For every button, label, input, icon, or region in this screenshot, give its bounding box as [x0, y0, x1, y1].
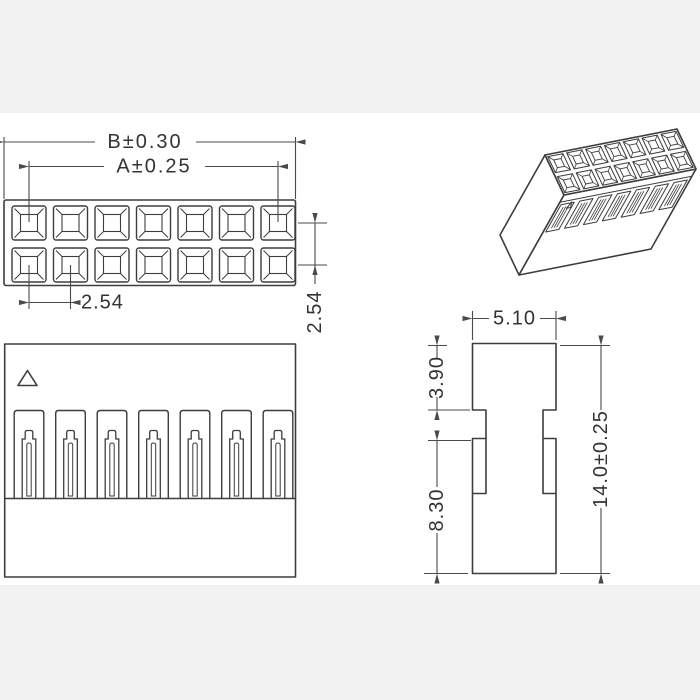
dim-label-pitch-vertical: 2.54 — [304, 291, 326, 334]
dim-label-lower-height: 8.30 — [426, 489, 448, 532]
technical-drawing: B±0.30 A±0.25 2.54 2.54 5.10 3.90 8.30 1… — [0, 0, 700, 700]
drawing-page: B±0.30 A±0.25 2.54 2.54 5.10 3.90 8.30 1… — [0, 0, 700, 700]
dim-label-overall-width: B±0.30 — [107, 131, 182, 153]
dim-label-upper-height: 3.90 — [426, 356, 448, 399]
dim-label-pin-span: A±0.25 — [116, 156, 191, 178]
dim-label-pitch-horizontal: 2.54 — [81, 292, 124, 314]
dim-label-width: 5.10 — [493, 308, 536, 330]
dim-label-overall-height: 14.0±0.25 — [590, 410, 612, 508]
